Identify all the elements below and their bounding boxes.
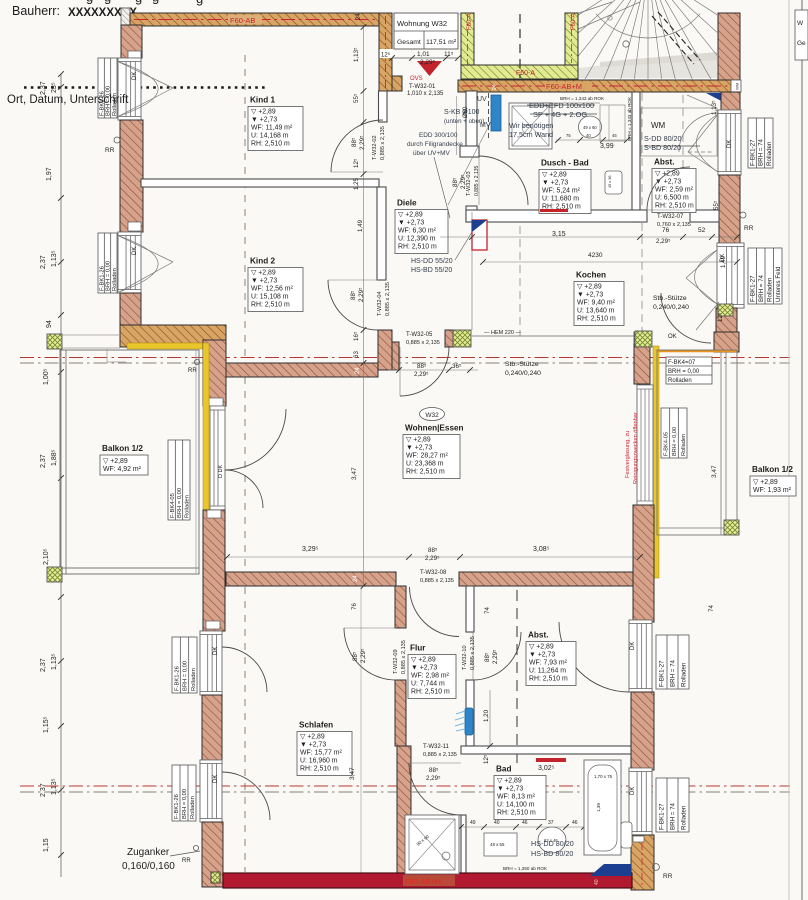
svg-text:RH: 2,510 m: RH: 2,510 m xyxy=(251,301,290,308)
svg-text:WF: 7,93 m²: WF: 7,93 m² xyxy=(529,659,568,666)
svg-text:WF: 4,92 m²: WF: 4,92 m² xyxy=(103,466,142,473)
svg-text:1,010 x 2,135: 1,010 x 2,135 xyxy=(407,91,444,97)
svg-text:0,885 x 2,135: 0,885 x 2,135 xyxy=(385,282,391,316)
svg-text:63: 63 xyxy=(353,351,360,358)
svg-text:2,29⁵: 2,29⁵ xyxy=(426,775,441,782)
svg-text:BRH = 74: BRH = 74 xyxy=(670,802,677,830)
svg-text:F60-AB+M: F60-AB+M xyxy=(405,877,441,886)
svg-text:Schlafen: Schlafen xyxy=(299,721,333,730)
svg-text:BRH = 0,00: BRH = 0,00 xyxy=(183,661,189,691)
svg-text:1,15: 1,15 xyxy=(43,838,50,852)
svg-text:U: 15,108 m: U: 15,108 m xyxy=(251,293,289,300)
svg-text:RH: 2,510 m: RH: 2,510 m xyxy=(406,468,445,475)
svg-text:Abst.: Abst. xyxy=(654,158,674,167)
svg-text:F-BK1-27: F-BK1-27 xyxy=(749,275,756,302)
svg-text:49 x 60: 49 x 60 xyxy=(583,125,597,130)
svg-text:WF: 6,30 m²: WF: 6,30 m² xyxy=(398,227,437,234)
svg-text:2,29⁵: 2,29⁵ xyxy=(359,135,366,150)
svg-text:1,13⁵: 1,13⁵ xyxy=(353,47,360,62)
svg-text:76: 76 xyxy=(662,227,670,234)
svg-text:T-W32-02: T-W32-02 xyxy=(372,135,378,160)
svg-text:1,00⁵: 1,00⁵ xyxy=(43,368,50,385)
svg-text:2,37: 2,37 xyxy=(40,81,47,95)
svg-text:3,47: 3,47 xyxy=(711,465,718,478)
svg-text:12⁵: 12⁵ xyxy=(717,312,724,322)
svg-text:WF: 2,59 m²: WF: 2,59 m² xyxy=(655,186,694,193)
svg-text:1,25: 1,25 xyxy=(353,177,360,190)
svg-text:4230: 4230 xyxy=(588,252,603,259)
svg-text:1,88⁵: 1,88⁵ xyxy=(51,449,58,466)
svg-text:WF: 28,27 m²: WF: 28,27 m² xyxy=(406,452,448,459)
svg-text:WF: 2,98 m²: WF: 2,98 m² xyxy=(411,672,450,679)
svg-text:23⁵: 23⁵ xyxy=(51,82,58,93)
svg-text:1,13⁵: 1,13⁵ xyxy=(711,100,718,115)
svg-text:1,01: 1,01 xyxy=(417,51,430,58)
svg-text:2,37: 2,37 xyxy=(40,658,47,672)
svg-text:Kind 2: Kind 2 xyxy=(250,257,275,266)
svg-text:Rolladen: Rolladen xyxy=(766,141,773,166)
svg-text:11⁵: 11⁵ xyxy=(444,51,454,58)
svg-text:88⁵: 88⁵ xyxy=(417,363,427,370)
svg-text:Wir benötigen: Wir benötigen xyxy=(509,121,553,130)
svg-text:▽ +2,89: ▽ +2,89 xyxy=(251,108,276,115)
svg-text:F60-A: F60-A xyxy=(516,70,535,77)
svg-text:2,37: 2,37 xyxy=(40,255,47,269)
svg-text:▽ +2,89: ▽ +2,89 xyxy=(251,269,276,276)
svg-text:1,70 x 75: 1,70 x 75 xyxy=(594,774,613,779)
svg-text:S-DD 80/20: S-DD 80/20 xyxy=(644,134,682,143)
svg-text:Rolladen: Rolladen xyxy=(190,796,196,819)
svg-text:▼ +2,73: ▼ +2,73 xyxy=(398,219,424,226)
svg-text:F-BK1-26: F-BK1-26 xyxy=(174,666,180,691)
svg-text:BRH = 74: BRH = 74 xyxy=(758,274,765,302)
svg-text:2,37: 2,37 xyxy=(40,454,47,468)
svg-text:0,160/0,160: 0,160/0,160 xyxy=(122,861,175,872)
svg-text:RR: RR xyxy=(744,225,754,232)
svg-text:BRH = 1,343 ab ROK: BRH = 1,343 ab ROK xyxy=(627,96,632,141)
svg-text:0,885 x 2,135: 0,885 x 2,135 xyxy=(474,165,480,196)
svg-text:WF: 1,93 m²: WF: 1,93 m² xyxy=(753,487,792,494)
svg-text:F60-A: F60-A xyxy=(571,14,577,30)
svg-text:WF: 12,56 m²: WF: 12,56 m² xyxy=(251,285,293,292)
svg-text:W32: W32 xyxy=(425,412,439,419)
svg-text:Rolladen: Rolladen xyxy=(681,662,688,687)
svg-text:3,08⁵: 3,08⁵ xyxy=(533,546,550,553)
svg-text:117,51 m²: 117,51 m² xyxy=(426,39,457,46)
svg-text:Rolladen: Rolladen xyxy=(766,277,773,302)
svg-text:g: g xyxy=(152,0,159,5)
svg-text:RR: RR xyxy=(188,368,197,374)
svg-text:Wohnung W32: Wohnung W32 xyxy=(397,19,447,28)
svg-text:46: 46 xyxy=(522,820,528,826)
svg-text:3,15: 3,15 xyxy=(552,231,566,238)
svg-text:g: g xyxy=(86,0,93,5)
svg-text:Wohnen|Essen: Wohnen|Essen xyxy=(405,424,464,433)
svg-text:2,29⁵: 2,29⁵ xyxy=(358,287,365,302)
svg-text:88⁵: 88⁵ xyxy=(484,652,491,662)
svg-text:▽ +2,89: ▽ +2,89 xyxy=(406,436,431,443)
svg-text:0,885 x 2,135: 0,885 x 2,135 xyxy=(470,636,476,670)
svg-text:49: 49 xyxy=(470,820,476,826)
svg-text:Zuganker: Zuganker xyxy=(127,847,170,858)
svg-text:▽ +2,89: ▽ +2,89 xyxy=(411,656,436,663)
svg-text:DK: DK xyxy=(132,72,138,80)
svg-text:HS-BD 55/20: HS-BD 55/20 xyxy=(411,267,452,274)
svg-text:3,02⁵: 3,02⁵ xyxy=(538,765,555,772)
svg-text:WF: 5,24 m²: WF: 5,24 m² xyxy=(542,187,581,194)
svg-text:1,49: 1,49 xyxy=(357,219,364,232)
svg-text:F-BK1-27: F-BK1-27 xyxy=(659,803,666,830)
svg-text:40: 40 xyxy=(594,879,600,885)
svg-text:U: 11,680 m: U: 11,680 m xyxy=(542,195,579,202)
svg-text:Gesamt: Gesamt xyxy=(397,39,421,46)
svg-text:16⁵: 16⁵ xyxy=(353,331,360,341)
svg-text:RH: 2,510 m: RH: 2,510 m xyxy=(655,202,694,209)
svg-text:Bad: Bad xyxy=(496,765,511,774)
svg-text:Kochen: Kochen xyxy=(576,271,606,280)
svg-text:F-BK1-27: F-BK1-27 xyxy=(659,660,666,687)
svg-text:HS-DD 80/20: HS-DD 80/20 xyxy=(531,839,574,848)
svg-text:▼ +2,73: ▼ +2,73 xyxy=(542,179,568,186)
svg-text:2,29⁵: 2,29⁵ xyxy=(420,59,436,66)
svg-text:RH: 2,510 m: RH: 2,510 m xyxy=(300,765,339,772)
svg-text:RH: 2,510 m: RH: 2,510 m xyxy=(251,140,290,147)
svg-text:Flur: Flur xyxy=(410,644,426,653)
svg-text:T-W32-04: T-W32-04 xyxy=(377,291,383,316)
svg-text:Stb.-Stütze: Stb.-Stütze xyxy=(653,295,687,302)
svg-text:▽ +2,89: ▽ +2,89 xyxy=(753,479,778,486)
svg-text:24: 24 xyxy=(353,575,359,582)
svg-text:76: 76 xyxy=(351,603,358,610)
svg-text:24: 24 xyxy=(492,84,498,90)
svg-text:1,13⁵: 1,13⁵ xyxy=(51,778,58,795)
svg-text:40: 40 xyxy=(494,820,500,826)
svg-text:BRH = 1,343 ab ROK: BRH = 1,343 ab ROK xyxy=(560,96,605,101)
svg-text:— HEM 220 —: — HEM 220 — xyxy=(484,330,521,336)
svg-text:1,49: 1,49 xyxy=(720,255,727,268)
svg-text:88⁵: 88⁵ xyxy=(351,137,358,147)
svg-text:W: W xyxy=(797,20,804,27)
svg-text:Rolladen: Rolladen xyxy=(681,434,687,456)
svg-text:40: 40 xyxy=(586,133,591,138)
svg-text:g: g xyxy=(104,0,111,5)
svg-text:88⁵: 88⁵ xyxy=(452,177,459,187)
svg-text:T-W32-01: T-W32-01 xyxy=(409,84,436,90)
svg-text:BRH = 74: BRH = 74 xyxy=(670,659,677,687)
svg-text:EDD+EFD 100x100: EDD+EFD 100x100 xyxy=(529,101,594,110)
svg-text:3,29⁵: 3,29⁵ xyxy=(302,546,319,553)
svg-text:RR: RR xyxy=(182,858,191,864)
svg-text:WF: 15,77 m²: WF: 15,77 m² xyxy=(300,749,342,756)
svg-text:DK: DK xyxy=(630,642,636,650)
svg-text:DK: DK xyxy=(132,247,138,255)
svg-text:F-BK4-05: F-BK4-05 xyxy=(664,432,670,456)
svg-text:MV: MV xyxy=(480,122,491,129)
svg-text:0,240/0,240: 0,240/0,240 xyxy=(653,304,689,311)
svg-text:OK: OK xyxy=(668,334,677,340)
svg-text:▼ +2,73: ▼ +2,73 xyxy=(497,785,523,792)
svg-text:T-W32-07: T-W32-07 xyxy=(657,214,684,220)
svg-text:BRH = 1,350 ab ROK: BRH = 1,350 ab ROK xyxy=(503,866,548,871)
svg-text:F-BK1-27: F-BK1-27 xyxy=(749,139,756,166)
svg-text:3,47: 3,47 xyxy=(351,467,358,480)
svg-text:T-W32-11: T-W32-11 xyxy=(423,744,450,750)
svg-text:U: 12,390 m: U: 12,390 m xyxy=(398,235,436,242)
svg-text:Rolladen: Rolladen xyxy=(112,268,118,291)
svg-text:▽ +2,89: ▽ +2,89 xyxy=(577,283,602,290)
svg-text:OVS: OVS xyxy=(410,76,423,82)
svg-text:55⁵: 55⁵ xyxy=(353,93,360,103)
svg-text:Unteres Feld: Unteres Feld xyxy=(775,266,782,302)
svg-text:17,5cm Wand: 17,5cm Wand xyxy=(509,130,553,139)
svg-text:24: 24 xyxy=(355,367,361,374)
svg-text:Rolladen: Rolladen xyxy=(191,668,197,691)
svg-text:▽ +2,89: ▽ +2,89 xyxy=(529,643,554,650)
svg-text:U: 16,960 m: U: 16,960 m xyxy=(300,757,338,764)
svg-text:2,37: 2,37 xyxy=(40,783,47,797)
svg-text:55⁵: 55⁵ xyxy=(713,200,720,210)
svg-text:▼ +2,73: ▼ +2,73 xyxy=(577,291,603,298)
svg-text:Ge: Ge xyxy=(797,40,806,47)
svg-text:g: g xyxy=(135,0,142,5)
svg-text:46: 46 xyxy=(572,820,578,826)
svg-text:Festverglasung, zu: Festverglasung, zu xyxy=(625,431,631,478)
svg-text:2,29⁵: 2,29⁵ xyxy=(425,555,440,562)
svg-text:Stb.-Stütze: Stb.-Stütze xyxy=(505,361,539,368)
svg-text:▽ +2,89: ▽ +2,89 xyxy=(103,458,128,465)
svg-text:S-KB Ø100: S-KB Ø100 xyxy=(444,109,480,116)
svg-text:RH: 2,510 m: RH: 2,510 m xyxy=(411,688,450,695)
svg-text:1,13⁵: 1,13⁵ xyxy=(51,653,58,670)
svg-text:T-W32-10: T-W32-10 xyxy=(462,645,468,670)
svg-text:DK: DK xyxy=(213,775,219,783)
svg-text:WF: 8,13 m²: WF: 8,13 m² xyxy=(497,793,536,800)
svg-text:Bauherr:: Bauherr: xyxy=(12,4,60,18)
svg-text:0,885 x 2,135: 0,885 x 2,135 xyxy=(423,752,457,758)
svg-text:EDD 300/100: EDD 300/100 xyxy=(419,132,458,139)
svg-text:F60-A: F60-A xyxy=(467,14,473,30)
svg-text:52: 52 xyxy=(698,227,706,234)
svg-text:UV: UV xyxy=(477,96,487,103)
svg-text:12⁵: 12⁵ xyxy=(483,754,490,764)
svg-text:▽ +2,89: ▽ +2,89 xyxy=(542,171,567,178)
svg-text:36⁵: 36⁵ xyxy=(452,363,462,370)
svg-text:SP + 4G + 2.OG: SP + 4G + 2.OG xyxy=(533,110,587,119)
svg-text:Reinigungszwecken öffenbar: Reinigungszwecken öffenbar xyxy=(633,412,639,484)
svg-text:BRH = 0,00: BRH = 0,00 xyxy=(182,789,188,819)
svg-text:Balkon 1/2: Balkon 1/2 xyxy=(752,465,793,474)
svg-text:▼ +2,73: ▼ +2,73 xyxy=(251,277,277,284)
svg-text:Diele: Diele xyxy=(397,199,417,208)
svg-text:WF: 11,49 m²: WF: 11,49 m² xyxy=(251,124,293,131)
svg-text:Rolladen: Rolladen xyxy=(185,495,191,518)
svg-text:Ort, Datum, Unterschrift: Ort, Datum, Unterschrift xyxy=(7,94,129,106)
svg-text:S-BD 80/20: S-BD 80/20 xyxy=(644,143,681,152)
svg-text:74: 74 xyxy=(708,605,715,612)
svg-text:RR: RR xyxy=(105,147,115,154)
svg-text:RH: 2,510 m: RH: 2,510 m xyxy=(398,243,437,250)
svg-text:(unten + oben): (unten + oben) xyxy=(444,118,484,125)
svg-text:▼ +2,73: ▼ +2,73 xyxy=(406,444,432,451)
svg-text:RR: RR xyxy=(663,873,673,880)
svg-text:94: 94 xyxy=(46,320,53,328)
svg-text:12⁵: 12⁵ xyxy=(353,158,360,168)
svg-text:24: 24 xyxy=(356,13,362,20)
svg-text:1,13⁵: 1,13⁵ xyxy=(51,250,58,267)
svg-text:1,20: 1,20 xyxy=(483,709,490,722)
svg-text:U: 14,168 m: U: 14,168 m xyxy=(251,132,289,139)
svg-text:0,885 x 2,135: 0,885 x 2,135 xyxy=(420,578,454,584)
svg-text:U: 23,368 m: U: 23,368 m xyxy=(406,460,444,467)
svg-text:RH: 2,510 m: RH: 2,510 m xyxy=(497,809,536,816)
svg-text:T-W32-05: T-W32-05 xyxy=(406,332,433,338)
svg-text:D DK: D DK xyxy=(218,465,224,478)
svg-text:HS-BD 80/20: HS-BD 80/20 xyxy=(531,849,573,858)
svg-text:U: 14,100 m: U: 14,100 m xyxy=(497,801,535,808)
svg-text:WM: WM xyxy=(651,121,666,130)
svg-text:T-W32-09: T-W32-09 xyxy=(393,649,399,674)
svg-text:HS-DD 55/20: HS-DD 55/20 xyxy=(411,258,453,265)
svg-text:DK: DK xyxy=(727,140,733,148)
svg-text:▼ +2,73: ▼ +2,73 xyxy=(300,741,326,748)
svg-text:88⁵: 88⁵ xyxy=(429,767,439,774)
svg-text:45: 45 xyxy=(612,133,617,138)
svg-text:▼ +2,73: ▼ +2,73 xyxy=(411,664,437,671)
svg-text:über UV+MV: über UV+MV xyxy=(413,150,450,157)
svg-text:1,97: 1,97 xyxy=(46,167,53,181)
svg-text:75: 75 xyxy=(566,133,571,138)
svg-text:88⁵: 88⁵ xyxy=(350,290,357,300)
svg-text:1,39: 1,39 xyxy=(596,803,601,812)
svg-text:▽ +2,89: ▽ +2,89 xyxy=(300,733,325,740)
svg-text:2,29⁵: 2,29⁵ xyxy=(492,649,499,664)
svg-text:▼ +2,73: ▼ +2,73 xyxy=(529,651,555,658)
svg-text:WF: 9,40 m²: WF: 9,40 m² xyxy=(577,299,616,306)
svg-text:F-BK1-26: F-BK1-26 xyxy=(174,794,180,819)
svg-text:g: g xyxy=(196,0,203,6)
svg-text:U: 6,500 m: U: 6,500 m xyxy=(655,194,689,201)
svg-text:37: 37 xyxy=(548,820,554,826)
svg-text:F60-AB: F60-AB xyxy=(230,16,255,25)
svg-text:▽ +2,89: ▽ +2,89 xyxy=(398,211,423,218)
svg-text:12⁵: 12⁵ xyxy=(381,52,391,59)
svg-text:BRH = 0,00: BRH = 0,00 xyxy=(668,369,700,375)
svg-text:88⁵: 88⁵ xyxy=(352,651,359,661)
svg-text:3,47: 3,47 xyxy=(349,767,356,780)
svg-text:2,29⁵: 2,29⁵ xyxy=(414,371,429,378)
svg-text:DK: DK xyxy=(630,787,636,795)
svg-text:DK: DK xyxy=(213,647,219,655)
svg-text:Abst.: Abst. xyxy=(528,631,548,640)
svg-text:Kind 1: Kind 1 xyxy=(250,96,275,105)
svg-text:▼ +2,73: ▼ +2,73 xyxy=(655,178,681,185)
svg-text:45 x 36: 45 x 36 xyxy=(608,176,612,188)
svg-text:▼ +2,73: ▼ +2,73 xyxy=(251,116,277,123)
svg-text:Rolladen: Rolladen xyxy=(668,378,692,384)
svg-text:RH: 2,510 m: RH: 2,510 m xyxy=(577,315,616,322)
svg-text:74: 74 xyxy=(484,607,491,614)
svg-text:BRH = 74: BRH = 74 xyxy=(758,138,765,166)
svg-text:▽ +2,89: ▽ +2,89 xyxy=(497,777,522,784)
svg-text:U: 7,744 m: U: 7,744 m xyxy=(411,680,445,687)
svg-text:durch Filigrandecke: durch Filigrandecke xyxy=(407,141,463,148)
svg-text:U: 13,640 m: U: 13,640 m xyxy=(577,307,615,314)
svg-text:48 x 55: 48 x 55 xyxy=(490,842,505,847)
svg-text:0,240/0,240: 0,240/0,240 xyxy=(505,370,541,377)
svg-text:Balkon 1/2: Balkon 1/2 xyxy=(102,444,143,453)
svg-text:T-W32-08: T-W32-08 xyxy=(420,570,447,576)
svg-text:F60-AB+M: F60-AB+M xyxy=(546,82,582,91)
svg-text:0,885 x 2,135: 0,885 x 2,135 xyxy=(401,640,407,674)
svg-text:2,29⁵: 2,29⁵ xyxy=(360,648,367,663)
svg-text:0,885 x 2,135: 0,885 x 2,135 xyxy=(406,340,440,346)
svg-text:2,10⁵: 2,10⁵ xyxy=(43,548,50,565)
svg-text:BRH = 0,00: BRH = 0,00 xyxy=(672,427,678,456)
svg-text:RH: 2,510 m: RH: 2,510 m xyxy=(529,675,568,682)
svg-text:F-BK4=07: F-BK4=07 xyxy=(668,360,696,366)
svg-text:2,29⁵: 2,29⁵ xyxy=(656,238,671,245)
svg-text:1,15⁵: 1,15⁵ xyxy=(43,716,50,733)
svg-text:WM: WM xyxy=(735,83,740,90)
svg-text:3,99: 3,99 xyxy=(600,143,614,150)
svg-text:U: 11,264 m: U: 11,264 m xyxy=(529,667,566,674)
svg-text:88⁵: 88⁵ xyxy=(428,547,438,554)
svg-text:Rolladen: Rolladen xyxy=(681,805,688,830)
svg-text:2,29⁵: 2,29⁵ xyxy=(460,174,467,189)
svg-text:0,885 x 2,135: 0,885 x 2,135 xyxy=(380,126,386,160)
svg-text:Dusch - Bad: Dusch - Bad xyxy=(541,159,589,168)
